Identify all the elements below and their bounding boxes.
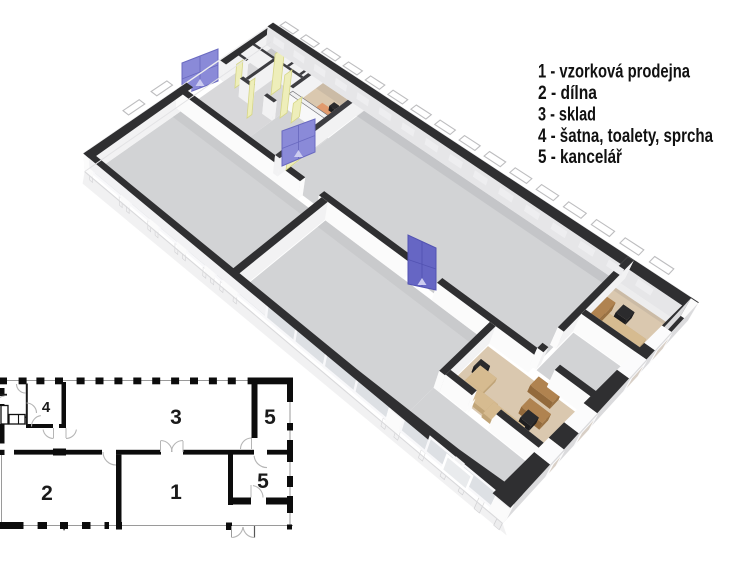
svg-text:3 - sklad: 3 - sklad: [538, 105, 596, 126]
svg-text:5: 5: [264, 406, 276, 429]
svg-text:2 - dílna: 2 - dílna: [538, 83, 597, 104]
svg-text:2: 2: [41, 482, 53, 505]
svg-text:1: 1: [170, 481, 182, 504]
svg-text:5: 5: [257, 470, 269, 493]
svg-text:4 - šatna, toalety, sprcha: 4 - šatna, toalety, sprcha: [538, 126, 713, 147]
svg-text:3: 3: [170, 406, 182, 429]
svg-text:4: 4: [42, 399, 51, 416]
svg-text:1 - vzorková prodejna: 1 - vzorková prodejna: [538, 62, 690, 83]
svg-text:5 - kancelář: 5 - kancelář: [538, 147, 622, 168]
